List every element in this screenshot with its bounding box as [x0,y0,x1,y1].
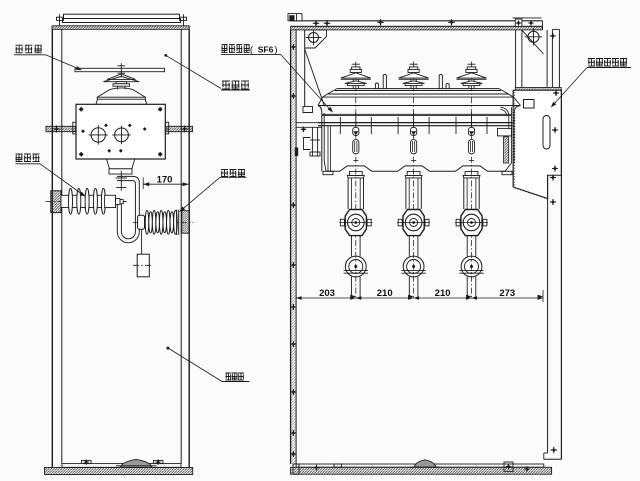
svg-text:170: 170 [157,175,173,186]
svg-text:210: 210 [435,288,451,299]
svg-text:SF6: SF6 [258,45,274,55]
svg-text:273: 273 [499,288,515,299]
svg-text:): ) [274,45,277,56]
svg-text:203: 203 [319,288,335,299]
svg-text:210: 210 [377,288,393,299]
